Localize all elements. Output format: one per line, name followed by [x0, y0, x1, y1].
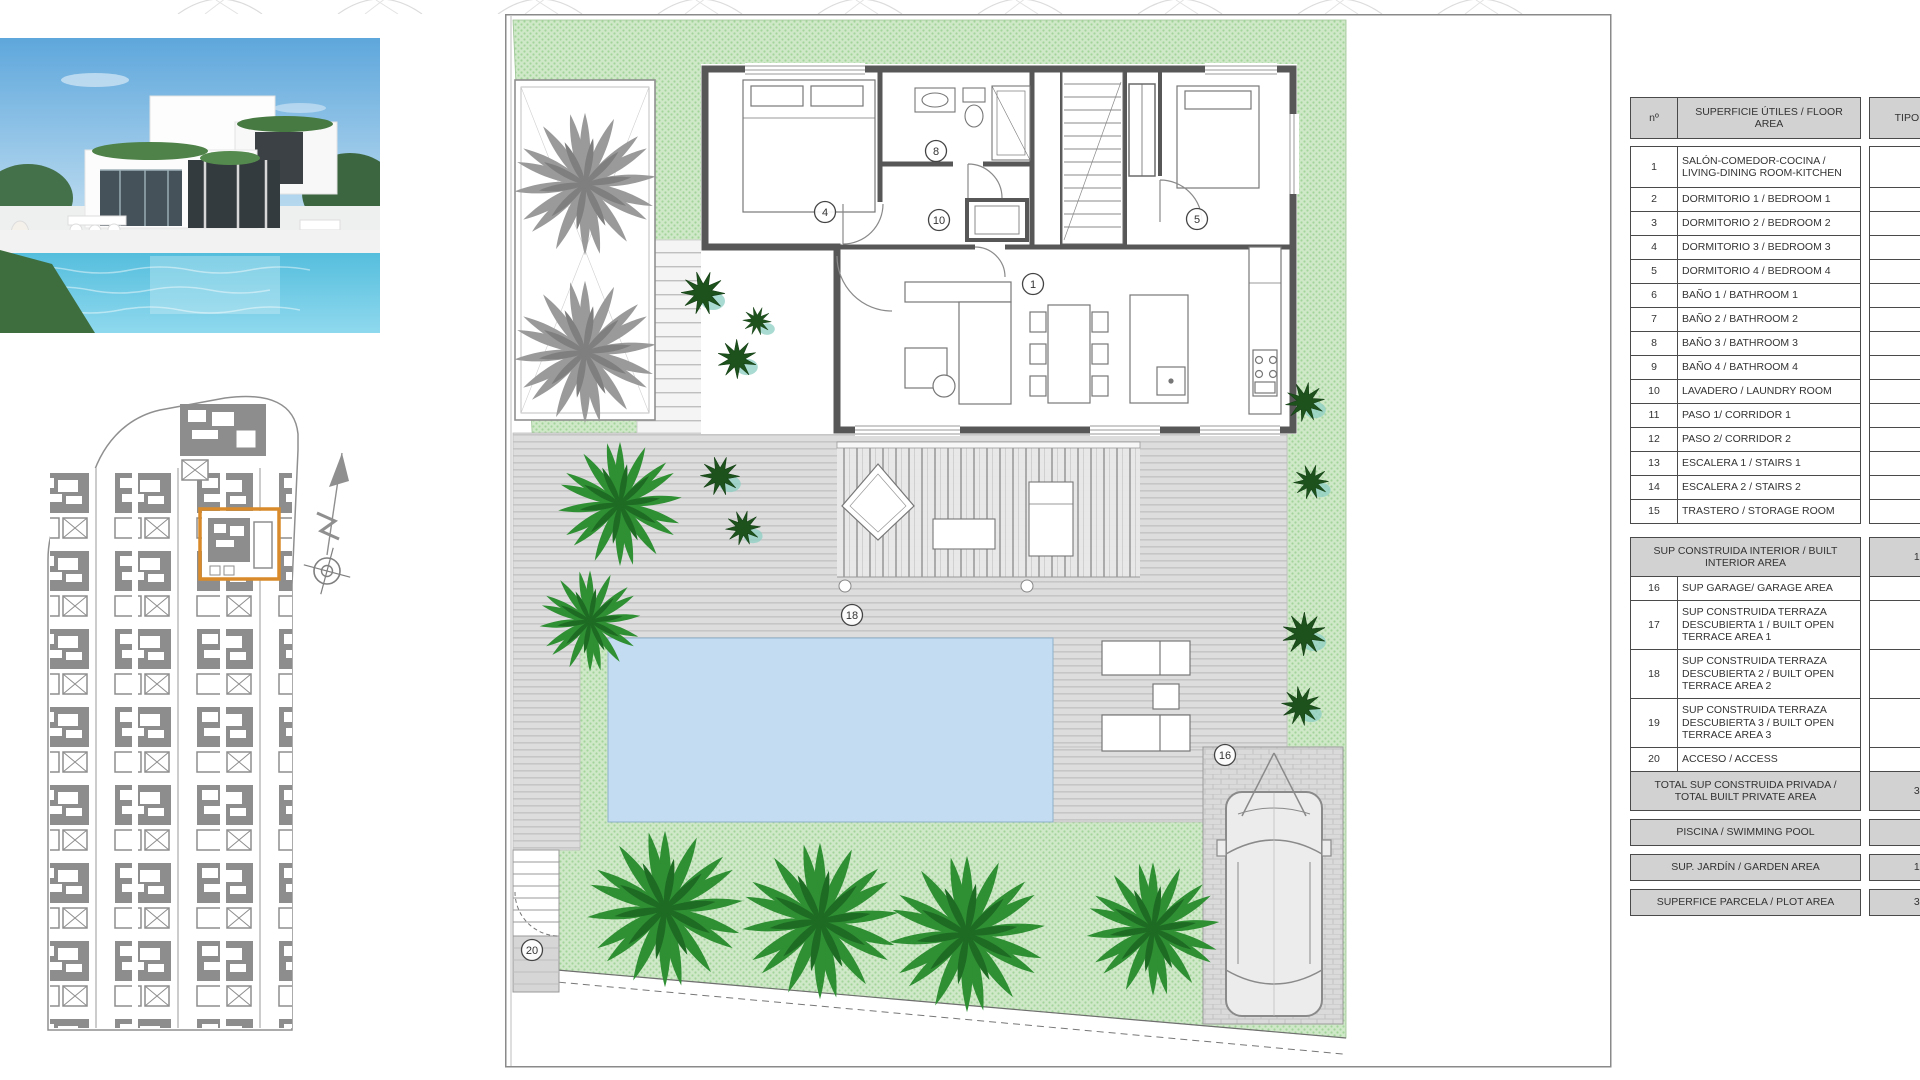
- cell-area-value: 6,45: [1869, 379, 1920, 404]
- cell-number: 20: [1630, 747, 1678, 772]
- cell-room-name: DORMITORIO 1 / BEDROOM 1: [1677, 187, 1861, 212]
- plan-label: 10: [929, 210, 950, 231]
- cell-number: 9: [1630, 355, 1678, 380]
- cell-area-value: 4,70: [1869, 451, 1920, 476]
- cell-room-name: TRASTERO / STORAGE ROOM: [1677, 499, 1861, 524]
- cell-room-name: PASO 1/ CORRIDOR 1: [1677, 403, 1861, 428]
- site-plan: [30, 390, 360, 1050]
- cell-number: 1: [1630, 146, 1678, 188]
- area-table: nº SUPERFICIE ÚTILES / FLOOR AREA TIPO 2…: [1630, 98, 1920, 916]
- table-row: 17SUP CONSTRUIDA TERRAZA DESCUBIERTA 1 /…: [1630, 600, 1920, 650]
- table-row: 10LAVADERO / LAUNDRY ROOM6,45: [1630, 379, 1920, 404]
- site-highlighted-unit: [200, 509, 279, 579]
- table-row: SUP CONSTRUIDA INTERIOR / BUILT INTERIOR…: [1630, 537, 1920, 577]
- table-row: 12PASO 2/ CORRIDOR 23,75: [1630, 427, 1920, 452]
- villa-photo: [0, 38, 380, 333]
- cell-area-value: 3,50: [1869, 331, 1920, 356]
- area-table-header: nº SUPERFICIE ÚTILES / FLOOR AREA TIPO 2…: [1630, 97, 1920, 139]
- cell-number: 7: [1630, 307, 1678, 332]
- cell-area-value: 8,70: [1869, 259, 1920, 284]
- side-table: [933, 375, 955, 397]
- cell-area-value: 4,45: [1869, 747, 1920, 772]
- cell-area-value: 26,05: [1869, 499, 1920, 524]
- cell-room-name: ACCESO / ACCESS: [1677, 747, 1861, 772]
- cell-area-value: 28,35: [1869, 600, 1920, 650]
- cell-room-name: ESCALERA 2 / STAIRS 2: [1677, 475, 1861, 500]
- plan-label: 1: [1023, 274, 1044, 295]
- table-row: 2DORMITORIO 1 / BEDROOM 111,40: [1630, 187, 1920, 212]
- table-row: 14ESCALERA 2 / STAIRS 25,40: [1630, 475, 1920, 500]
- table-gap: [1630, 524, 1920, 538]
- top-frieze-decoration: [0, 0, 1920, 14]
- table-row: 19SUP CONSTRUIDA TERRAZA DESCUBIERTA 3 /…: [1630, 698, 1920, 748]
- cell-number: 11: [1630, 403, 1678, 428]
- sofa: [905, 282, 1011, 302]
- table-row: 13ESCALERA 1 / STAIRS 14,70: [1630, 451, 1920, 476]
- plan-label: 8: [926, 141, 947, 162]
- outdoor-table: [933, 519, 995, 549]
- lounge-chair: [1029, 482, 1073, 556]
- page: { "document": { "type": "architectural-p…: [0, 0, 1920, 1080]
- cell-number: 8: [1630, 331, 1678, 356]
- cell-number: 15: [1630, 499, 1678, 524]
- cell-area-value: 71,15: [1869, 649, 1920, 699]
- svg-text:10: 10: [933, 215, 945, 227]
- cell-area-value: 30,60: [1869, 819, 1920, 846]
- cell-room-name: DORMITORIO 2 / BEDROOM 2: [1677, 211, 1861, 236]
- plan-label: 5: [1187, 209, 1208, 230]
- table-row: 3DORMITORIO 2 / BEDROOM 210,25: [1630, 211, 1920, 236]
- cell-area-value: 170,13: [1869, 537, 1920, 577]
- photo-pool-deck: [0, 230, 380, 254]
- cell-room-name: BAÑO 2 / BATHROOM 2: [1677, 307, 1861, 332]
- cell-number: 16: [1630, 576, 1678, 601]
- plan-label: 16: [1215, 745, 1236, 766]
- cell-room-name: BAÑO 3 / BATHROOM 3: [1677, 331, 1861, 356]
- cell-area-value: 4,05: [1869, 283, 1920, 308]
- cell-room-name: SALÓN-COMEDOR-COCINA / LIVING-DINING ROO…: [1677, 146, 1861, 188]
- cell-area-value: 5,40: [1869, 475, 1920, 500]
- table-row: SUPERFICE PARCELA / PLOT AREA330,55: [1630, 889, 1920, 916]
- cell-number: 10: [1630, 379, 1678, 404]
- floor-plan-sheet: 481051181620: [505, 14, 1612, 1080]
- table-row: 18SUP CONSTRUIDA TERRAZA DESCUBIERTA 2 /…: [1630, 649, 1920, 699]
- bed-bedroom5: [1177, 86, 1259, 188]
- cell-area-value: 5,80: [1869, 355, 1920, 380]
- dining-table: [1048, 305, 1090, 403]
- svg-text:18: 18: [846, 610, 858, 622]
- cell-area-value: 3,75: [1869, 427, 1920, 452]
- cell-room-name: PASO 2/ CORRIDOR 2: [1677, 427, 1861, 452]
- table-row: 11PASO 1/ CORRIDOR 11,70: [1630, 403, 1920, 428]
- pergola-post: [1021, 580, 1033, 592]
- cell-section-name: SUPERFICE PARCELA / PLOT AREA: [1630, 889, 1861, 916]
- pergola: [837, 442, 1140, 592]
- cell-area-value: 1,70: [1869, 403, 1920, 428]
- car: [1217, 792, 1331, 1016]
- area-table-body: 1SALÓN-COMEDOR-COCINA / LIVING-DINING RO…: [1630, 139, 1920, 916]
- table-row: 6BAÑO 1 / BATHROOM 14,05: [1630, 283, 1920, 308]
- table-row: TOTAL SUP CONSTRUIDA PRIVADA / TOTAL BUI…: [1630, 771, 1920, 811]
- swimming-pool: [608, 638, 1053, 822]
- cell-room-name: LAVADERO / LAUNDRY ROOM: [1677, 379, 1861, 404]
- svg-text:1: 1: [1030, 279, 1036, 291]
- cell-room-name: DORMITORIO 3 / BEDROOM 3: [1677, 235, 1861, 260]
- cell-number: 14: [1630, 475, 1678, 500]
- cell-area-value: 312,78: [1869, 771, 1920, 811]
- table-row: 5DORMITORIO 4 / BEDROOM 48,70: [1630, 259, 1920, 284]
- table-row: 15TRASTERO / STORAGE ROOM26,05: [1630, 499, 1920, 524]
- cell-area-value: 17,05: [1869, 576, 1920, 601]
- cell-room-name: SUP CONSTRUIDA TERRAZA DESCUBIERTA 2 / B…: [1677, 649, 1861, 699]
- table-row: 8BAÑO 3 / BATHROOM 33,50: [1630, 331, 1920, 356]
- svg-text:8: 8: [933, 146, 939, 158]
- cell-room-name: BAÑO 1 / BATHROOM 1: [1677, 283, 1861, 308]
- table-row: SUP. JARDÍN / GARDEN AREA102,65: [1630, 854, 1920, 881]
- table-row: PISCINA / SWIMMING POOL30,60: [1630, 819, 1920, 846]
- cell-number: 17: [1630, 600, 1678, 650]
- cell-section-name: SUP CONSTRUIDA INTERIOR / BUILT INTERIOR…: [1630, 537, 1861, 577]
- access-steps: [513, 850, 559, 992]
- cell-area-value: 11,40: [1869, 187, 1920, 212]
- cell-section-name: TOTAL SUP CONSTRUIDA PRIVADA / TOTAL BUI…: [1630, 771, 1861, 811]
- header-num: nº: [1630, 97, 1678, 139]
- cell-area-value: 102,65: [1869, 854, 1920, 881]
- cell-area-value: 330,55: [1869, 889, 1920, 916]
- cell-section-name: PISCINA / SWIMMING POOL: [1630, 819, 1861, 846]
- cell-room-name: SUP CONSTRUIDA TERRAZA DESCUBIERTA 3 / B…: [1677, 698, 1861, 748]
- sofa: [959, 302, 1011, 404]
- table-row: 9BAÑO 4 / BATHROOM 45,80: [1630, 355, 1920, 380]
- cell-area-value: 4,35: [1869, 307, 1920, 332]
- north-compass: [298, 453, 357, 600]
- plan-label: 18: [842, 605, 863, 626]
- cell-room-name: DORMITORIO 4 / BEDROOM 4: [1677, 259, 1861, 284]
- svg-text:4: 4: [822, 207, 828, 219]
- svg-text:16: 16: [1219, 750, 1231, 762]
- garage-area: [1203, 747, 1343, 1024]
- cell-room-name: BAÑO 4 / BATHROOM 4: [1677, 355, 1861, 380]
- plan-label: 4: [815, 202, 836, 223]
- cell-number: 19: [1630, 698, 1678, 748]
- cell-number: 12: [1630, 427, 1678, 452]
- cell-number: 18: [1630, 649, 1678, 699]
- cell-area-value: 10,10: [1869, 235, 1920, 260]
- bed-bedroom4: [743, 80, 875, 212]
- svg-text:5: 5: [1194, 214, 1200, 226]
- cell-room-name: ESCALERA 1 / STAIRS 1: [1677, 451, 1861, 476]
- cell-number: 3: [1630, 211, 1678, 236]
- cell-number: 2: [1630, 187, 1678, 212]
- cell-area-value: 10,25: [1869, 211, 1920, 236]
- site-units: [50, 404, 292, 1028]
- cell-area-value: 31,15: [1869, 146, 1920, 188]
- svg-text:20: 20: [526, 945, 538, 957]
- stairs: [1062, 72, 1123, 244]
- plan-label: 20: [522, 940, 543, 961]
- cell-number: 4: [1630, 235, 1678, 260]
- cell-section-name: SUP. JARDÍN / GARDEN AREA: [1630, 854, 1861, 881]
- header-label: SUPERFICIE ÚTILES / FLOOR AREA: [1677, 97, 1861, 139]
- table-row: 20ACCESO / ACCESS4,45: [1630, 747, 1920, 772]
- cell-number: 6: [1630, 283, 1678, 308]
- header-type: TIPO 2-: [1869, 97, 1920, 139]
- cell-number: 5: [1630, 259, 1678, 284]
- villa-building: [701, 63, 1299, 436]
- cell-area-value: 21,65: [1869, 698, 1920, 748]
- cell-room-name: SUP CONSTRUIDA TERRAZA DESCUBIERTA 1 / B…: [1677, 600, 1861, 650]
- table-row: 1SALÓN-COMEDOR-COCINA / LIVING-DINING RO…: [1630, 146, 1920, 188]
- cell-room-name: SUP GARAGE/ GARAGE AREA: [1677, 576, 1861, 601]
- cell-number: 13: [1630, 451, 1678, 476]
- table-row: 7BAÑO 2 / BATHROOM 24,35: [1630, 307, 1920, 332]
- table-row: 16SUP GARAGE/ GARAGE AREA17,05: [1630, 576, 1920, 601]
- pergola-post: [839, 580, 851, 592]
- table-row: 4DORMITORIO 3 / BEDROOM 310,10: [1630, 235, 1920, 260]
